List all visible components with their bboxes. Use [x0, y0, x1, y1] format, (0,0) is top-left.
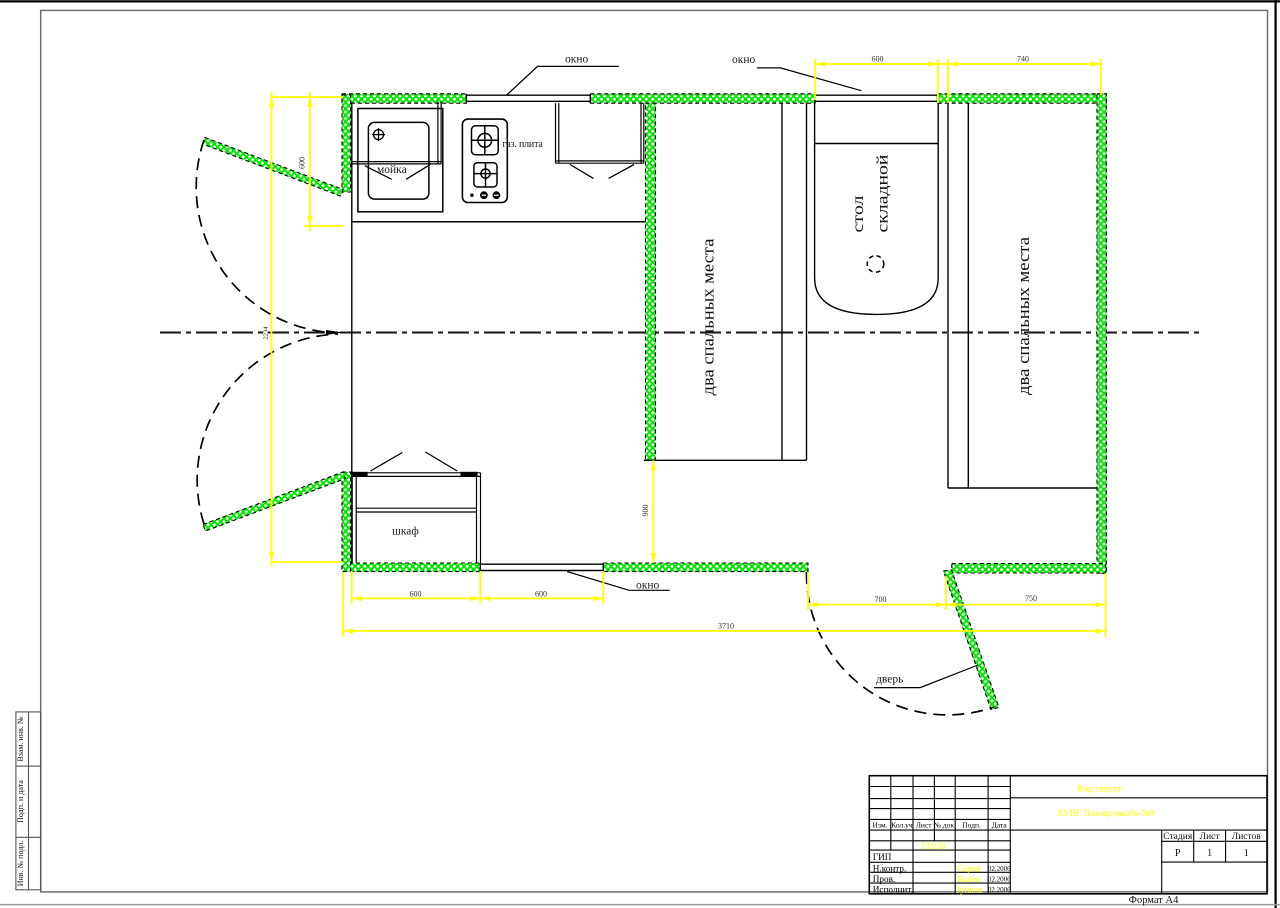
svg-text:Инв. № подл.: Инв. № подл.: [16, 841, 25, 887]
svg-text:Изм.: Изм.: [873, 821, 888, 830]
svg-text:Подп. и дата: Подп. и дата: [16, 780, 25, 823]
svg-text:Лист: Лист: [916, 821, 932, 830]
svg-text:Зуйков: Зуйков: [956, 884, 983, 894]
svg-text:Взам. инв. №: Взам. инв. №: [16, 716, 25, 761]
svg-text:складной: складной: [875, 154, 892, 233]
svg-text:два спальных места: два спальных места: [699, 238, 718, 395]
svg-text:мойка: мойка: [377, 164, 407, 176]
svg-text:Подп.: Подп.: [962, 821, 981, 830]
svg-text:02.2006: 02.2006: [988, 875, 1011, 883]
svg-text:ГИП: ГИП: [873, 852, 892, 862]
svg-text:600: 600: [872, 55, 884, 64]
svg-text:740: 740: [1017, 55, 1029, 64]
svg-text:дверь: дверь: [876, 674, 903, 686]
svg-text:133/26: 133/26: [920, 841, 946, 851]
svg-text:600: 600: [298, 157, 307, 169]
svg-text:02.2006: 02.2006: [988, 886, 1011, 894]
svg-text:Исполнит.: Исполнит.: [873, 884, 913, 894]
svg-text:Вид сверху: Вид сверху: [1077, 785, 1123, 795]
svg-text:Н.контр.: Н.контр.: [873, 863, 906, 873]
svg-text:№ док.: № док.: [934, 821, 956, 830]
svg-text:Быков: Быков: [957, 874, 981, 884]
svg-text:Пров.: Пров.: [873, 874, 895, 884]
svg-text:Серов: Серов: [957, 863, 980, 873]
svg-text:750: 750: [1025, 594, 1037, 603]
svg-text:два спальных места: два спальных места: [1014, 237, 1033, 395]
svg-text:Р: Р: [1175, 848, 1181, 859]
svg-text:600: 600: [535, 590, 547, 599]
svg-text:Листов: Листов: [1232, 832, 1262, 842]
svg-text:газ. плита: газ. плита: [503, 139, 544, 150]
svg-text:окно: окно: [732, 54, 755, 66]
svg-text:Дата: Дата: [992, 821, 1008, 830]
svg-text:Кол.уч: Кол.уч: [891, 821, 913, 830]
svg-text:Формат А4: Формат А4: [1129, 895, 1179, 906]
svg-text:900: 900: [641, 505, 650, 517]
svg-text:3710: 3710: [718, 622, 734, 631]
svg-text:600: 600: [410, 590, 422, 599]
svg-text:700: 700: [875, 595, 887, 604]
svg-text:2234: 2234: [263, 326, 270, 340]
svg-text:Лист: Лист: [1200, 832, 1221, 842]
svg-text:1: 1: [1244, 848, 1249, 859]
svg-text:Стадия: Стадия: [1163, 832, 1193, 842]
svg-text:КУНГ Планировка№-№9: КУНГ Планировка№-№9: [1058, 808, 1155, 818]
svg-text:шкаф: шкаф: [392, 526, 419, 538]
svg-text:стол: стол: [850, 195, 867, 232]
svg-text:1: 1: [1207, 848, 1212, 859]
svg-text:02.2006: 02.2006: [988, 865, 1011, 873]
svg-text:окно: окно: [565, 54, 588, 66]
